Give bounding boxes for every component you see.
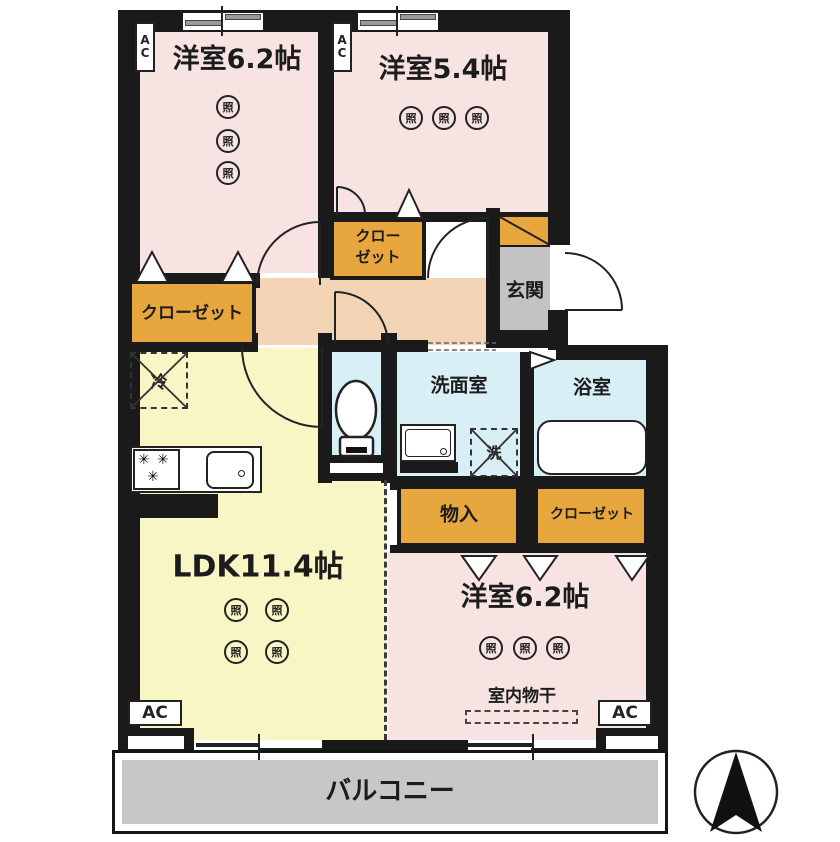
light-char: 照 [272,602,283,618]
indoor-drying-label: 室内物干 [488,688,556,707]
light-symbol: 照 [224,598,248,622]
room-bottom-right-label: 洋室6.2帖 [461,583,590,613]
light-char: 照 [223,165,234,181]
closet-right-label: クローゼット [550,507,634,522]
toilet-tank-icon [340,437,373,456]
door-arc-ldk [242,347,322,427]
ac-letter: C [338,47,347,60]
storage-label: 物入 [440,505,478,526]
light-symbol: 照 [399,106,423,130]
light-symbol: 照 [265,640,289,664]
ac-badge-room1: A C [135,22,155,72]
light-symbol: 照 [546,636,570,660]
washroom-label: 洗面室 [430,376,487,397]
light-symbol: 照 [224,640,248,664]
light-char: 照 [223,133,234,149]
ac-badge-ldk: AC [128,700,182,726]
light-char: 照 [231,644,242,660]
closet-left-label: クローゼット [141,305,243,324]
washer-x-mark [472,430,516,475]
toilet-bowl-icon [336,381,376,439]
closet-top-label-line1: クロー [355,228,400,245]
bath-folding-door-icon [530,352,554,369]
light-symbol: 照 [432,106,456,130]
door-arc-room2 [337,187,365,215]
door-arc-hall [428,218,488,278]
door-arc-entry [565,253,622,310]
light-char: 照 [406,110,417,126]
room-top-left-label: 洋室6.2帖 [173,45,302,75]
closet-right-bifold-icon [616,556,649,580]
balcony-label: バルコニー [325,778,454,807]
ac-letter: C [141,47,150,60]
bathroom-label: 浴室 [573,378,611,399]
ac-label: AC [612,703,638,723]
closet-right-bifold-icon [524,556,557,580]
room-top-right-label: 洋室5.4帖 [379,55,508,85]
light-char: 照 [553,640,564,656]
ac-label: AC [142,703,168,723]
ldk-label: LDK11.4帖 [172,551,343,584]
light-char: 照 [520,640,531,656]
floorplan: ✳ ✳ ✳ 冷 洗 [0,0,840,842]
light-symbol: 照 [265,598,289,622]
light-char: 照 [272,644,283,660]
closet-top-label-line2: ゼット [355,249,400,266]
closet-left-bifold-icon [136,252,168,282]
door-arc-room1 [257,222,320,285]
door-arc-toilet [335,292,388,345]
vector-overlay [0,0,840,842]
fridge-x-mark [132,354,186,407]
light-char: 照 [472,110,483,126]
shoe-cabinet-diagonal [500,217,550,245]
closet-top-bifold-icon [396,190,422,218]
toilet-seat-icon [346,447,367,453]
light-char: 照 [486,640,497,656]
light-char: 照 [223,99,234,115]
storage-bifold-icon [462,556,496,580]
light-symbol: 照 [216,161,240,185]
light-symbol: 照 [216,95,240,119]
light-symbol: 照 [513,636,537,660]
light-char: 照 [439,110,450,126]
light-symbol: 照 [479,636,503,660]
ac-badge-room2: A C [332,22,352,72]
entrance-label: 玄関 [506,281,544,302]
light-symbol: 照 [465,106,489,130]
light-char: 照 [231,602,242,618]
ac-badge-room3: AC [598,700,652,726]
light-symbol: 照 [216,129,240,153]
closet-left-bifold-icon [222,252,254,282]
